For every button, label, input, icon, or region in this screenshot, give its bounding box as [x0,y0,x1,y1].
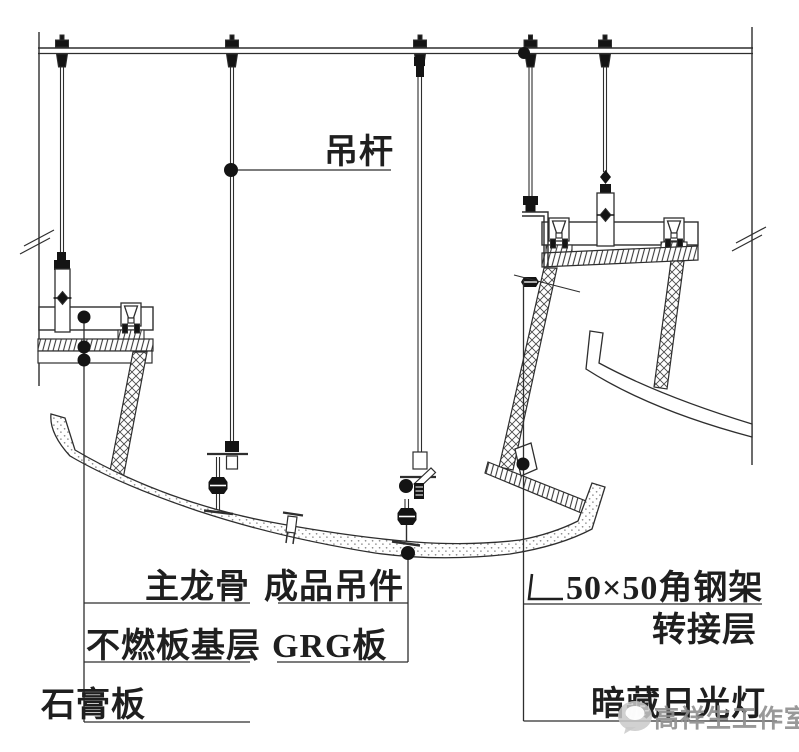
left-break-mark [20,230,54,254]
watermark: 高祥生工作室 [618,701,799,734]
lamp-cove-board [485,462,596,517]
diagonal-strut [109,352,147,479]
dot-noncombustible [78,341,91,354]
round-knob-icon [399,479,413,493]
anchor-bolt-icon [599,35,612,67]
l-bracket [522,212,548,267]
label-gypsum-board: 石膏板 [40,685,146,724]
dot-grg [401,546,415,560]
label-noncombustible-board: 不燃板基层 [86,627,261,665]
frame-right-band [654,261,684,389]
label-grg-board: GRG板 [272,627,387,665]
hanger-rod-4 [518,35,548,267]
label-transfer-layer: 转接层 [652,611,757,649]
frame-left-band [499,268,557,470]
hanger-rod-5 [597,35,615,246]
hanger-rod-1 [54,35,72,332]
dot-main-keel [78,311,91,324]
dot-gypsum [78,354,91,367]
anchor-bolt-icon [226,35,239,67]
label-main-keel: 主龙骨 [145,568,250,606]
hanger-rod-3 [392,35,436,546]
detail-drawing-canvas: 吊杆 主龙骨 成品吊件 不燃板基层 GRG板 石膏板 50×50角钢架 转接层 … [0,0,799,752]
noncombustible-board-layer [38,339,153,351]
dot-hanger-rod [224,163,238,177]
construction-detail-drawing: 吊杆 主龙骨 成品吊件 不燃板基层 GRG板 石膏板 50×50角钢架 转接层 … [0,0,799,752]
hanger-rod-2 [204,35,248,514]
label-finished-hanger: 成品吊件 [264,568,404,606]
anchor-bolt-icon [56,35,69,67]
right-break-mark [732,227,766,251]
angle-steel-symbol-icon [529,574,563,599]
anchor-dot [518,47,530,59]
label-hanger-rod: 吊杆 [324,133,394,171]
watermark-text: 高祥生工作室 [654,704,799,733]
clip-pad [118,330,144,339]
label-angle-steel-frame: 50×50角钢架 [566,569,763,607]
dot-angle-frame [517,458,530,471]
